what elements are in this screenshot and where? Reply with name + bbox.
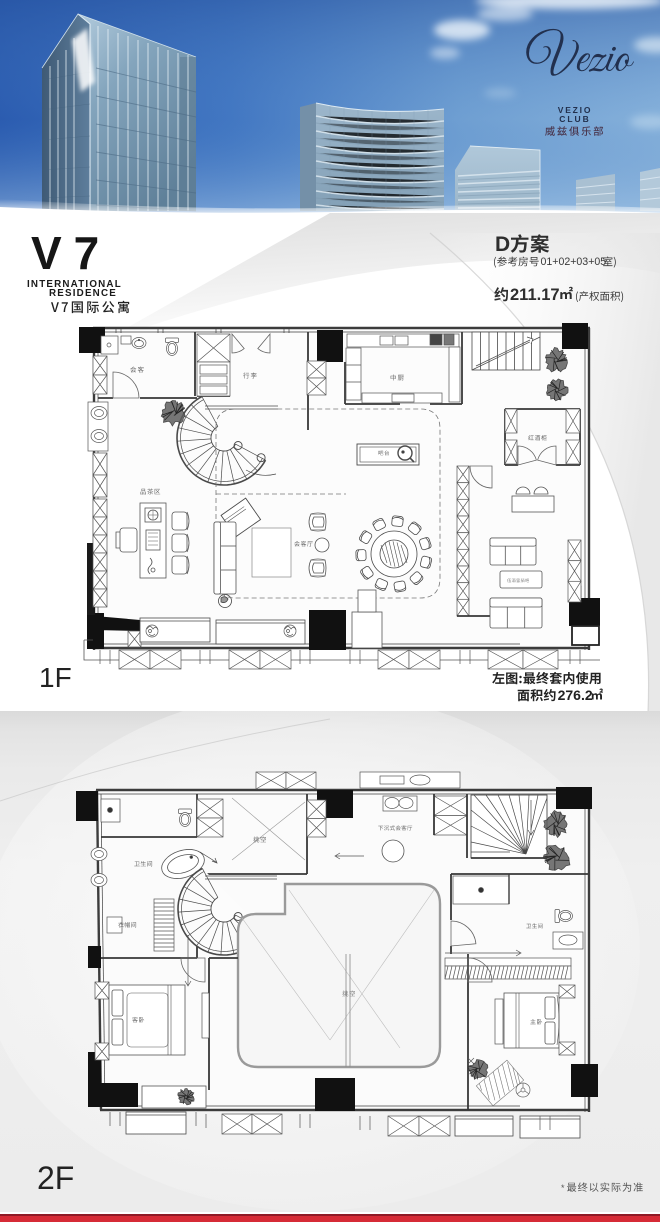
svg-text:276.2: 276.2 bbox=[558, 687, 593, 703]
svg-text:01+02+03+05: 01+02+03+05 bbox=[540, 256, 606, 268]
svg-text:*: * bbox=[561, 1183, 565, 1193]
svg-text:CLUB: CLUB bbox=[559, 114, 591, 124]
